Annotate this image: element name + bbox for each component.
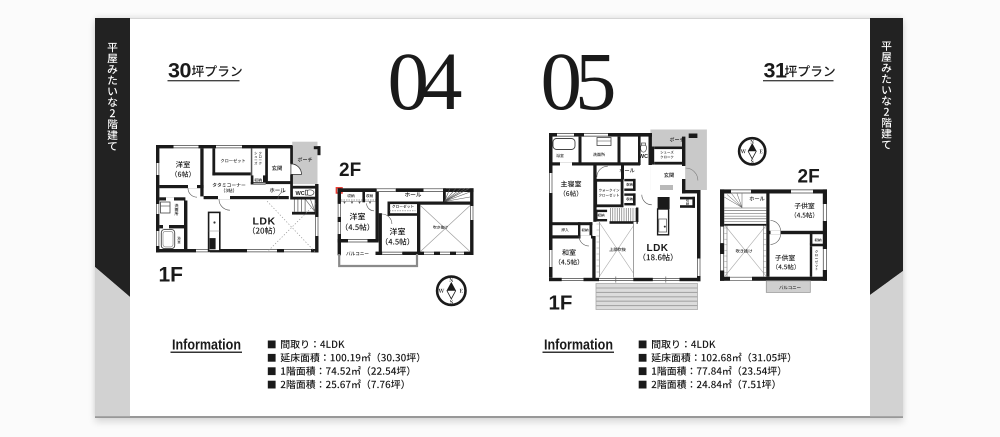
svg-text:04: 04 (388, 35, 463, 127)
svg-text:1F: 1F (549, 292, 573, 315)
svg-text:Information: Information (172, 338, 241, 354)
svg-text:31: 31 (764, 59, 787, 83)
svg-text:05: 05 (541, 35, 615, 127)
svg-text:2F: 2F (798, 167, 820, 188)
svg-text:LDK: LDK (646, 243, 668, 254)
svg-text:LDK: LDK (252, 216, 275, 228)
svg-text:2F: 2F (339, 160, 361, 181)
svg-text:30: 30 (168, 59, 191, 83)
svg-text:WC: WC (296, 191, 305, 197)
svg-text:1F: 1F (159, 264, 184, 287)
svg-text:Information: Information (544, 338, 613, 354)
